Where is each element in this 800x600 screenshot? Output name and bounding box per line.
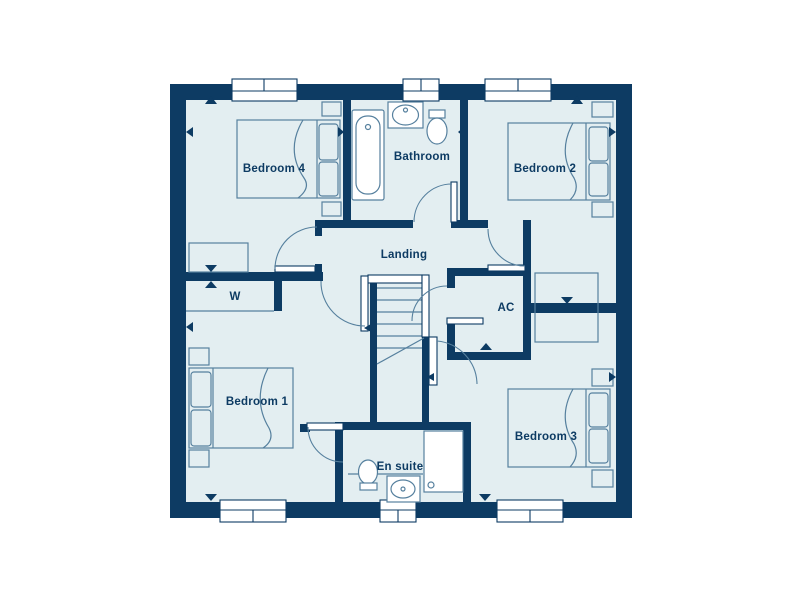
room-label-en-suite: En suite xyxy=(377,461,424,473)
ensuite-washbasin-icon xyxy=(387,476,420,502)
window-bedroom3 xyxy=(497,500,563,522)
floor-plan-drawing: Bedroom 4 Bathroom Bedroom 2 Landing W A… xyxy=(0,0,800,600)
room-label-bedroom-2: Bedroom 2 xyxy=(514,163,576,175)
bathtub-icon xyxy=(352,110,384,200)
washbasin-icon xyxy=(388,102,423,128)
room-label-airing-cupboard: AC xyxy=(497,302,514,314)
room-label-landing: Landing xyxy=(381,249,427,261)
room-label-bedroom-3: Bedroom 3 xyxy=(515,431,577,443)
window-bathroom xyxy=(403,79,439,101)
window-bedroom2 xyxy=(485,79,551,101)
shower-icon xyxy=(424,431,463,492)
window-bedroom4 xyxy=(232,79,297,101)
room-label-bedroom-4: Bedroom 4 xyxy=(243,163,306,175)
ensuite-toilet-icon xyxy=(359,460,378,490)
window-bedroom1 xyxy=(220,500,286,522)
floor-plan-page: Bedroom 4 Bathroom Bedroom 2 Landing W A… xyxy=(0,0,800,600)
room-label-bedroom-1: Bedroom 1 xyxy=(226,396,289,408)
room-label-wardrobe: W xyxy=(229,291,240,303)
window-ensuite xyxy=(380,500,416,522)
room-label-bathroom: Bathroom xyxy=(394,151,450,163)
toilet-icon xyxy=(427,110,447,144)
